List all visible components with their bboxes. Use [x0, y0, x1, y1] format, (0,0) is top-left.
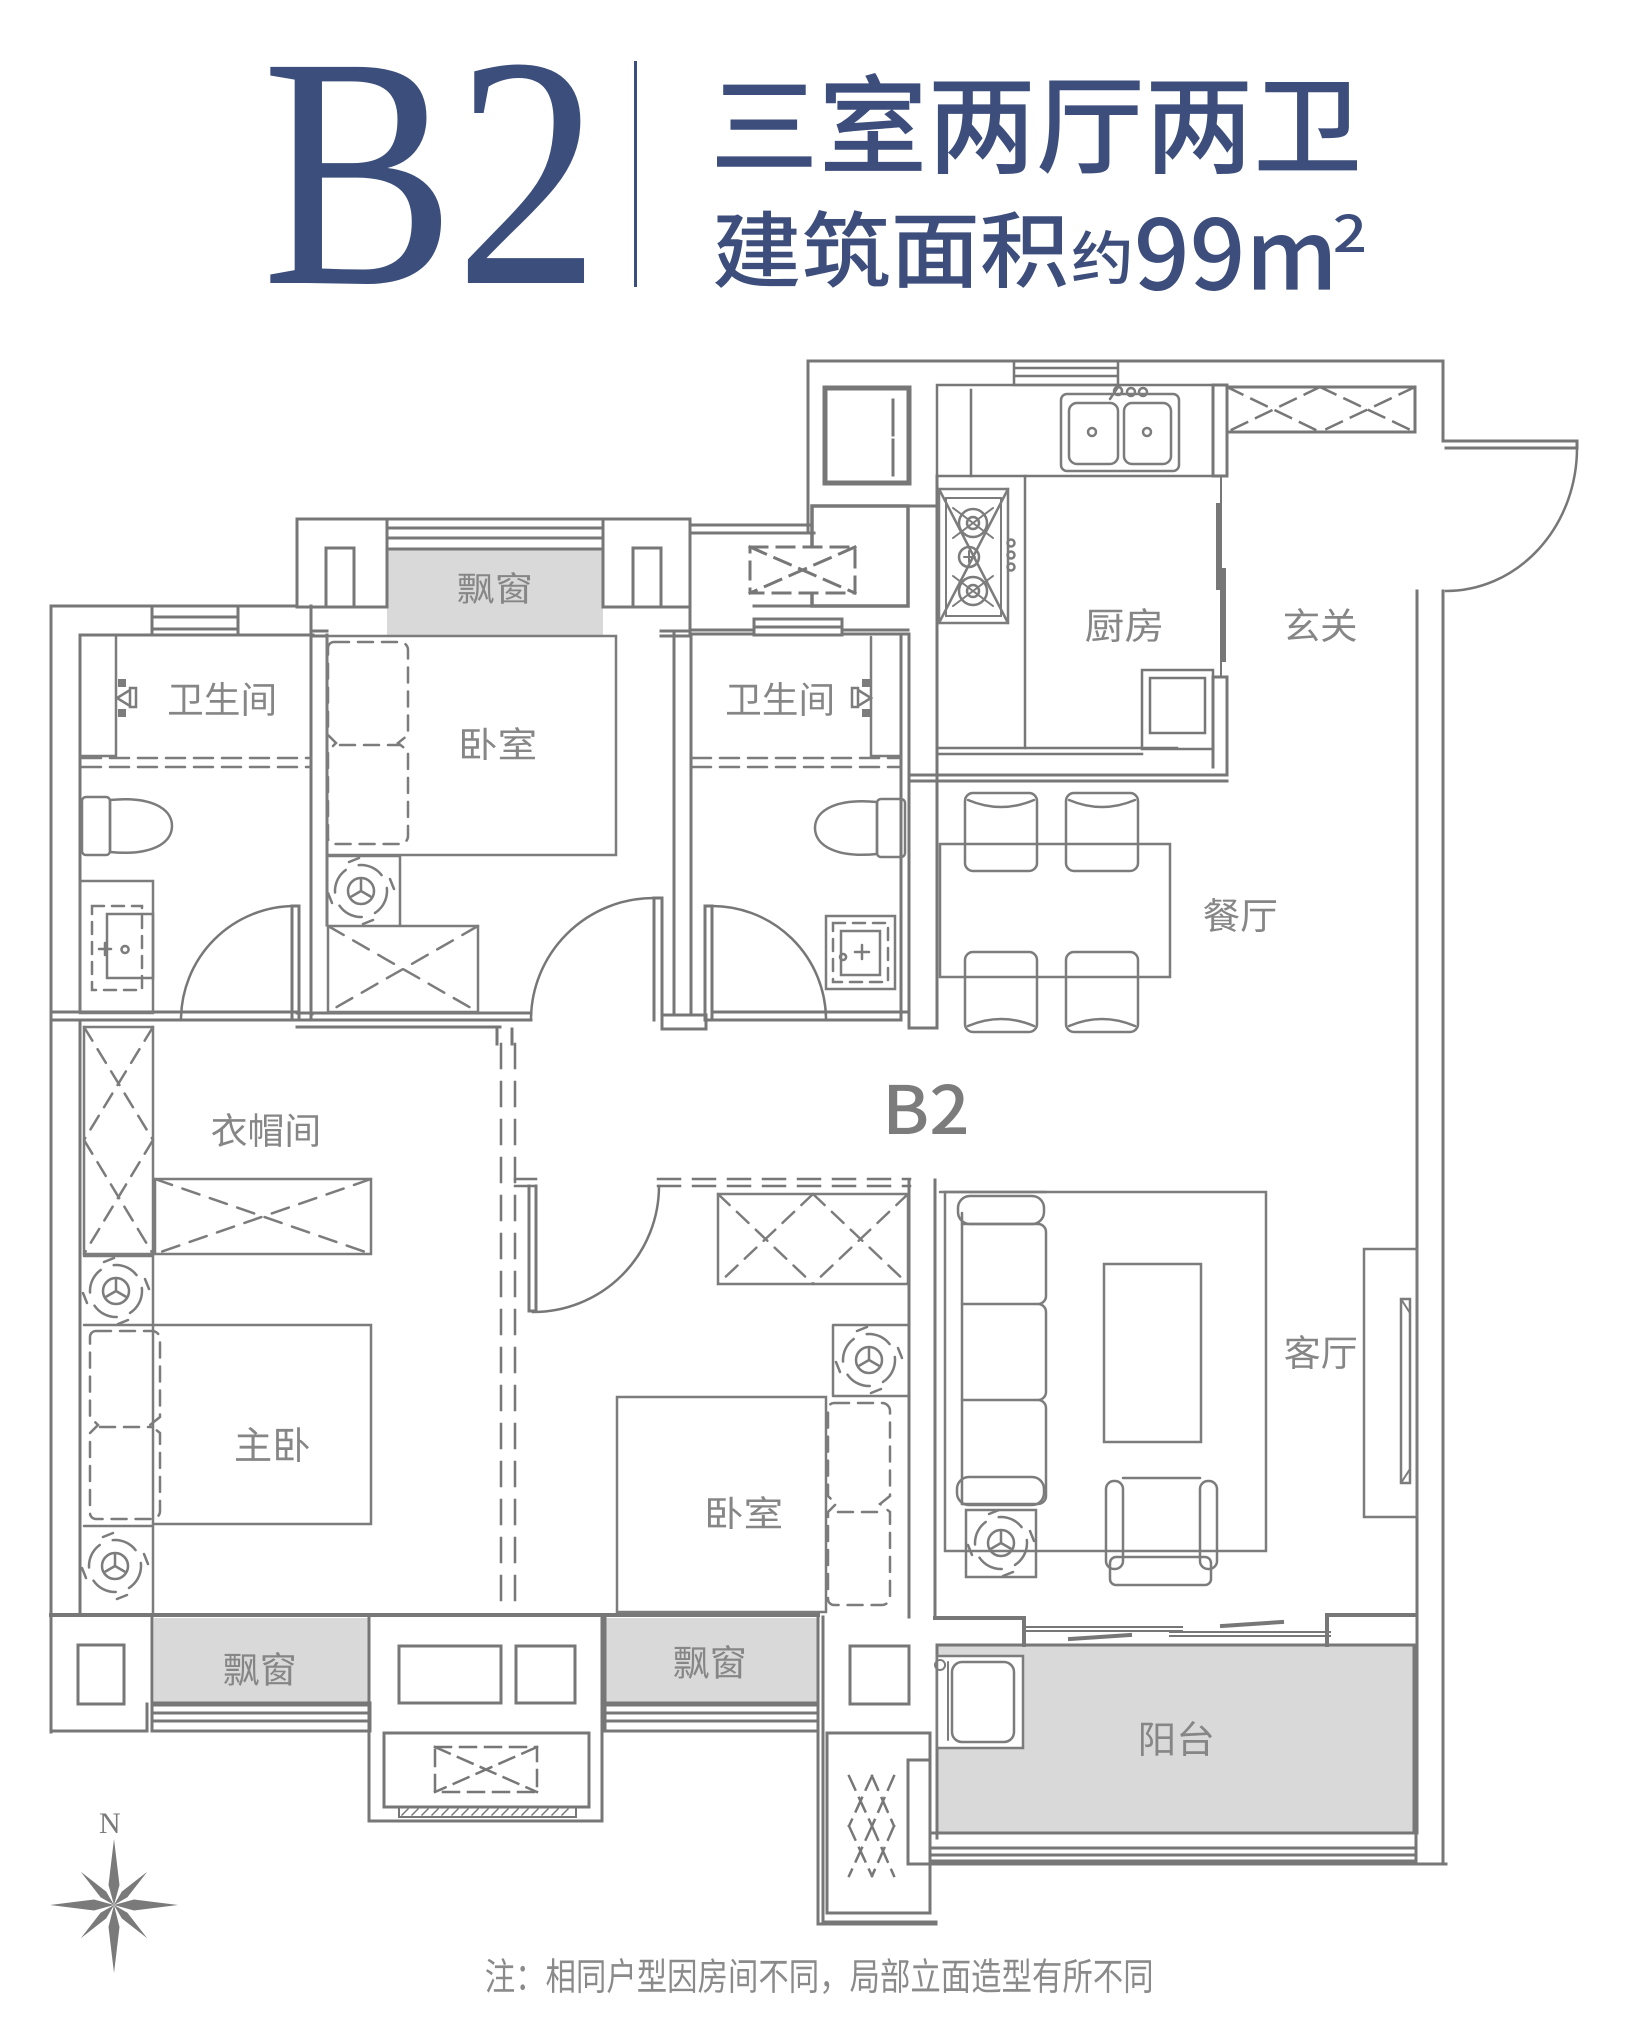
- svg-text:B2: B2: [262, 0, 600, 355]
- svg-text:N: N: [99, 1807, 121, 1840]
